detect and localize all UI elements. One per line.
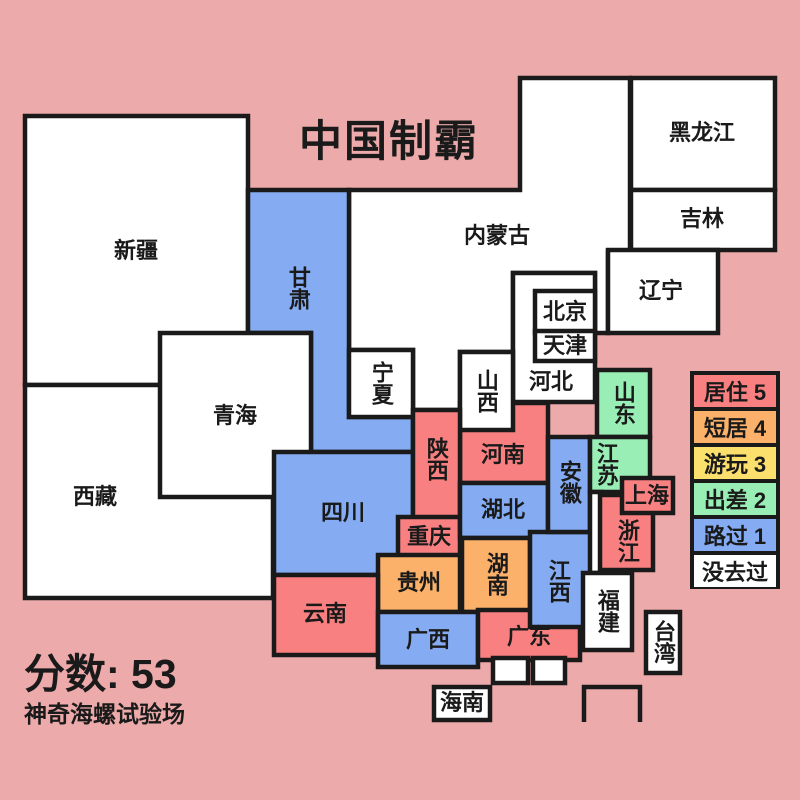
label-hunan: 湖南	[484, 552, 508, 596]
watermark-text: 神奇海螺试验场	[24, 695, 185, 729]
label-shanxi: 山西	[474, 369, 498, 413]
label-sichuan: 四川	[321, 501, 365, 525]
label-ningxia: 宁夏	[369, 361, 393, 405]
label-shaanxi: 陕西	[424, 437, 448, 481]
label-heilongjiang: 黑龙江	[669, 121, 735, 145]
label-henan: 河南	[481, 443, 525, 467]
label-shandong: 山东	[611, 381, 635, 425]
label-gansu: 甘肃	[286, 266, 310, 310]
label-jilin: 吉林	[680, 207, 724, 231]
label-hainan: 海南	[440, 691, 484, 715]
label-liaoning: 辽宁	[639, 279, 683, 303]
legend-item-visited: 游玩 3	[694, 447, 776, 483]
legend-item-stayed: 短居 4	[694, 411, 776, 447]
label-hebei: 河北	[529, 370, 573, 394]
label-neimenggu: 内蒙古	[464, 224, 530, 248]
legend: 居住 5 短居 4 游玩 3 出差 2 路过 1 没去过	[690, 371, 780, 589]
label-zhejiang: 浙江	[615, 519, 639, 563]
app-canvas: 新疆 西藏 青海 甘肃 内蒙古 黑龙江 吉林 辽宁 北京 天津 河北 宁夏 山西…	[0, 0, 800, 800]
label-hubei: 湖北	[481, 498, 525, 522]
label-jiangsu: 江苏	[594, 442, 618, 486]
label-guizhou: 贵州	[397, 571, 441, 595]
score-text: 分数: 53	[24, 640, 177, 700]
label-taiwan: 台湾	[651, 620, 675, 664]
label-qinghai: 青海	[213, 404, 257, 428]
legend-item-business: 出差 2	[694, 483, 776, 519]
label-xinjiang: 新疆	[114, 239, 158, 263]
label-jiangxi: 江西	[546, 559, 570, 603]
legend-item-never: 没去过	[694, 555, 776, 587]
label-fujian: 福建	[595, 589, 619, 633]
label-beijing: 北京	[543, 300, 587, 324]
legend-item-passed: 路过 1	[694, 519, 776, 555]
label-shanghai: 上海	[625, 484, 669, 508]
label-xizang: 西藏	[73, 485, 117, 509]
label-yunnan: 云南	[303, 602, 347, 626]
label-tianjin: 天津	[543, 334, 587, 358]
label-anhui: 安徽	[557, 460, 581, 504]
label-guangxi: 广西	[406, 628, 450, 652]
label-guangdong: 广东	[507, 625, 551, 649]
page-title: 中国制霸	[299, 107, 479, 169]
legend-item-lived: 居住 5	[694, 375, 776, 411]
label-chongqing: 重庆	[407, 525, 451, 549]
